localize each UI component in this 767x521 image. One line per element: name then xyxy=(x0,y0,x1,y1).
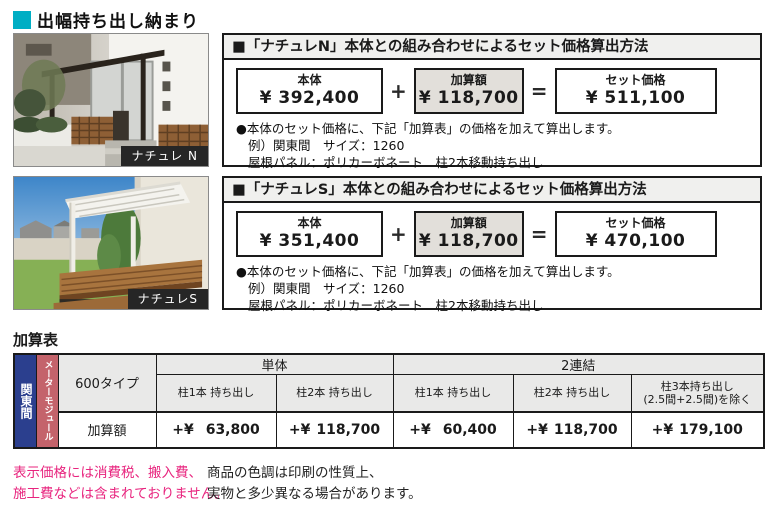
panel-n-box-set: セット価格 ¥ 511,100 xyxy=(555,68,717,114)
column-header: 柱2本 持ち出し xyxy=(513,375,631,412)
price-panel-nature-s: ■「ナチュレS」本体との組み合わせによるセット価格算出方法 本体 ¥ 351,4… xyxy=(222,176,762,310)
catalog-page: 出幅持ち出し納まり xyxy=(0,0,767,521)
price-disclaimer-note: 表示価格には消費税、搬入費、 施工費などは含まれておりません。 xyxy=(13,463,228,505)
photo-s-label: ナチュレS xyxy=(128,289,208,309)
box-add-label: 加算額 xyxy=(416,216,522,231)
price-panel-nature-n: ■「ナチュレN」本体との組み合わせによるセット価格算出方法 本体 ¥ 392,4… xyxy=(222,33,762,167)
type-label-cell: 600タイプ xyxy=(58,354,156,412)
box-add-label: 加算額 xyxy=(416,73,522,88)
note-line: ●本体のセット価格に、下記「加算表」の価格を加えて算出します。 xyxy=(236,120,760,137)
box-main-price: ¥ 351,400 xyxy=(238,231,381,251)
note-line: 屋根パネル：ポリカーボネート 柱2本移動持ち出し xyxy=(236,297,760,314)
disclaimer-line: 実物と多少異なる場合があります。 xyxy=(207,484,422,505)
column-header: 柱2本 持ち出し xyxy=(276,375,393,412)
value-cell: +¥118,700 xyxy=(513,412,631,448)
panel-n-box-add: 加算額 ¥ 118,700 xyxy=(414,68,524,114)
group-header-single: 単体 xyxy=(156,354,393,375)
column-header: 柱1本 持ち出し xyxy=(393,375,513,412)
box-main-price: ¥ 392,400 xyxy=(238,88,381,108)
product-photo-nature-n: ナチュレ N xyxy=(13,33,209,167)
equals-operator: = xyxy=(524,222,555,246)
value-cell: +¥63,800 xyxy=(156,412,276,448)
section-header: 出幅持ち出し納まり xyxy=(13,7,199,32)
value-cell: +¥118,700 xyxy=(276,412,393,448)
panel-s-box-main: 本体 ¥ 351,400 xyxy=(236,211,383,257)
panel-n-title: ■「ナチュレN」本体との組み合わせによるセット価格算出方法 xyxy=(224,35,760,60)
equals-operator: = xyxy=(524,79,555,103)
note-line: 屋根パネル：ポリカーボネート 柱2本移動持ち出し xyxy=(236,154,760,171)
table-row-groups: 関東間 メーターモジュール 600タイプ 単体 2連結 xyxy=(14,354,764,375)
column-header: 柱3本持ち出し (2.5間+2.5間)を除く xyxy=(631,375,764,412)
plus-operator: + xyxy=(383,222,414,246)
panel-s-title: ■「ナチュレS」本体との組み合わせによるセット価格算出方法 xyxy=(224,178,760,203)
box-main-label: 本体 xyxy=(238,216,381,231)
panel-n-notes: ●本体のセット価格に、下記「加算表」の価格を加えて算出します。 例）関東間 サイ… xyxy=(236,120,760,171)
box-add-price: ¥ 118,700 xyxy=(416,231,522,251)
panel-n-box-main: 本体 ¥ 392,400 xyxy=(236,68,383,114)
disclaimer-line: 施工費などは含まれておりません。 xyxy=(13,484,228,505)
column-header: 柱1本 持ち出し xyxy=(156,375,276,412)
color-disclaimer-note: 商品の色調は印刷の性質上、 実物と多少異なる場合があります。 xyxy=(207,463,422,505)
value-cell: +¥179,100 xyxy=(631,412,764,448)
box-set-price: ¥ 470,100 xyxy=(557,231,715,251)
photo-n-label: ナチュレ N xyxy=(121,146,208,166)
disclaimer-line: 表示価格には消費税、搬入費、 xyxy=(13,463,228,484)
panel-s-box-set: セット価格 ¥ 470,100 xyxy=(555,211,717,257)
panel-n-calc-row: 本体 ¥ 392,400 + 加算額 ¥ 118,700 = セット価格 ¥ 5… xyxy=(236,68,760,114)
module-label: メーターモジュール xyxy=(37,360,59,441)
module-label-cell: メーターモジュール xyxy=(36,354,58,448)
row-label-cell: 加算額 xyxy=(58,412,156,448)
group-header-double: 2連結 xyxy=(393,354,764,375)
disclaimer-line: 商品の色調は印刷の性質上、 xyxy=(207,463,422,484)
box-add-price: ¥ 118,700 xyxy=(416,88,522,108)
value-cell: +¥60,400 xyxy=(393,412,513,448)
note-line: ●本体のセット価格に、下記「加算表」の価格を加えて算出します。 xyxy=(236,263,760,280)
box-set-label: セット価格 xyxy=(557,73,715,88)
page-title: 出幅持ち出し納まり xyxy=(37,7,199,32)
box-set-price: ¥ 511,100 xyxy=(557,88,715,108)
region-label: 関東間 xyxy=(15,383,36,419)
panel-s-calc-row: 本体 ¥ 351,400 + 加算額 ¥ 118,700 = セット価格 ¥ 4… xyxy=(236,211,760,257)
panel-s-notes: ●本体のセット価格に、下記「加算表」の価格を加えて算出します。 例）関東間 サイ… xyxy=(236,263,760,314)
table-row-values: 加算額 +¥63,800 +¥118,700 +¥60,400 +¥118,70… xyxy=(14,412,764,448)
box-main-label: 本体 xyxy=(238,73,381,88)
plus-operator: + xyxy=(383,79,414,103)
note-line: 例）関東間 サイズ：1260 xyxy=(236,137,760,154)
add-table-title: 加算表 xyxy=(13,329,58,350)
note-line: 例）関東間 サイズ：1260 xyxy=(236,280,760,297)
product-photo-nature-s: ナチュレS xyxy=(13,176,209,310)
panel-s-box-add: 加算額 ¥ 118,700 xyxy=(414,211,524,257)
box-set-label: セット価格 xyxy=(557,216,715,231)
section-marker-icon xyxy=(13,11,31,29)
add-table: 関東間 メーターモジュール 600タイプ 単体 2連結 柱1本 持ち出し 柱2本… xyxy=(13,353,765,449)
region-label-cell: 関東間 xyxy=(14,354,36,448)
